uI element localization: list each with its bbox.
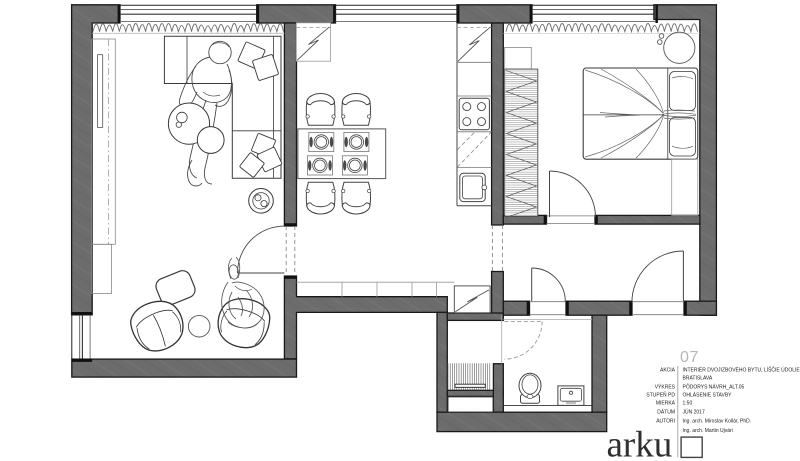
svg-text:VÝKRES: VÝKRES [655, 384, 676, 391]
svg-text:MIERKA: MIERKA [656, 400, 676, 406]
svg-text:DÁTUM: DÁTUM [657, 409, 675, 416]
svg-text:PÔDORYS NÁVRH_ALT.05: PÔDORYS NÁVRH_ALT.05 [683, 384, 745, 391]
svg-text:arku: arku [607, 425, 673, 461]
svg-text:Ing. arch. Martin Ujvári: Ing. arch. Martin Ujvári [683, 428, 733, 434]
svg-text:Ing. arch. Miroslav Kollár, Ph: Ing. arch. Miroslav Kollár, PhD. [683, 419, 752, 425]
svg-text:BRATISLAVA: BRATISLAVA [683, 375, 713, 381]
svg-text:OHLÁSENIE STAVBY: OHLÁSENIE STAVBY [683, 391, 733, 398]
svg-text:INTERIÉR DVOJIZBOVÉHO BYTU, LÍ: INTERIÉR DVOJIZBOVÉHO BYTU, LÍŠČIE ÚDOLI… [683, 367, 800, 374]
svg-text:1:50: 1:50 [683, 400, 693, 406]
svg-text:JÚN 2017: JÚN 2017 [683, 409, 705, 416]
svg-text:07: 07 [680, 349, 699, 366]
svg-text:AKCIA: AKCIA [660, 368, 676, 374]
svg-text:STUPEŇ PD: STUPEŇ PD [646, 391, 675, 398]
